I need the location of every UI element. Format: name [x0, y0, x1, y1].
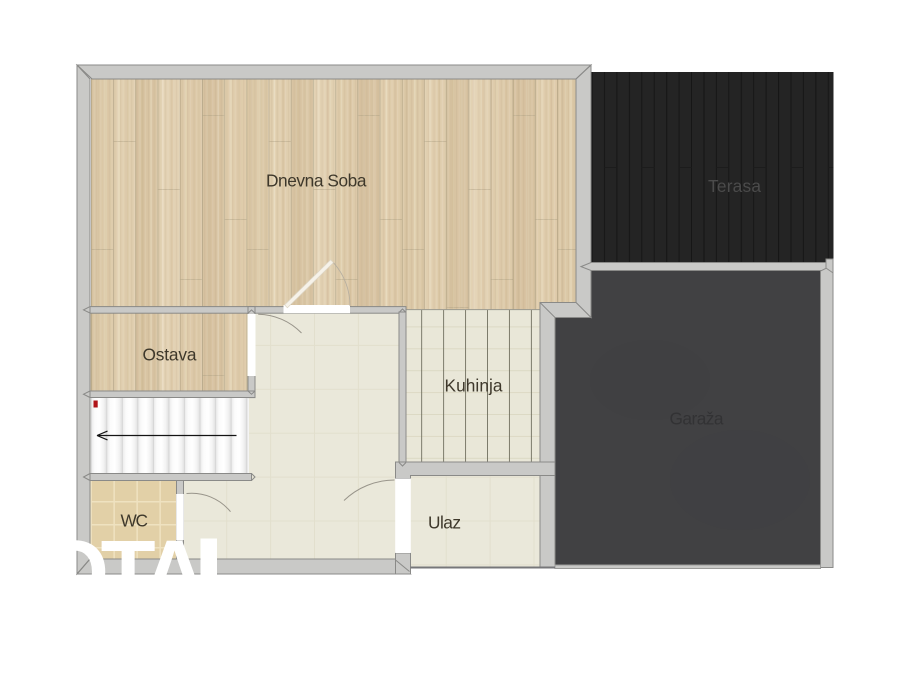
svg-text:A: A — [142, 523, 207, 623]
svg-text:Garaža: Garaža — [670, 409, 724, 429]
svg-text:Dnevna Soba: Dnevna Soba — [266, 171, 367, 191]
svg-text:Ulaz: Ulaz — [428, 513, 461, 533]
svg-text:Terasa: Terasa — [708, 176, 761, 196]
svg-text:Ostava: Ostava — [143, 345, 197, 365]
svg-text:O: O — [39, 523, 109, 623]
svg-text:Kuhinja: Kuhinja — [445, 376, 503, 396]
